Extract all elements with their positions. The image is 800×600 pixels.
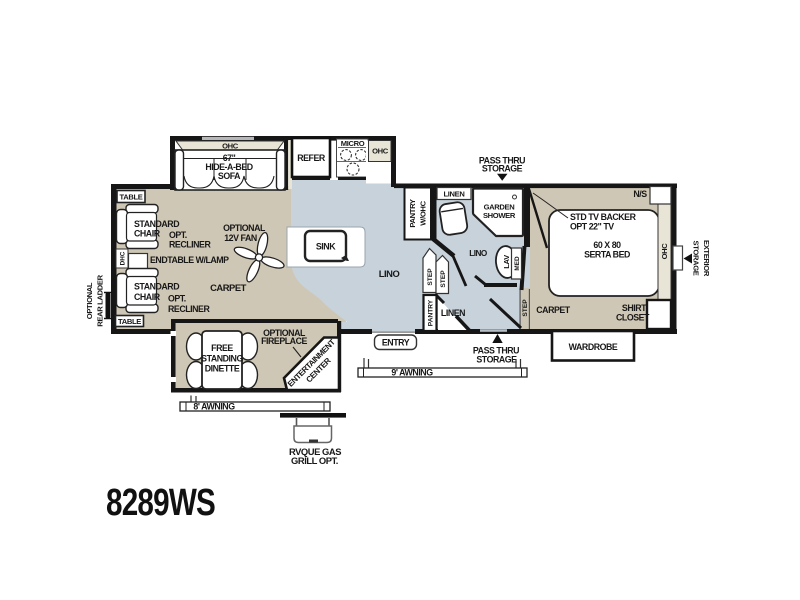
svg-text:STD TV BACKER: STD TV BACKER: [570, 212, 637, 222]
svg-text:LINEN: LINEN: [443, 190, 464, 199]
svg-text:PANTRY: PANTRY: [408, 199, 417, 228]
svg-text:STANDARD: STANDARD: [134, 282, 179, 292]
svg-text:MED: MED: [514, 256, 521, 271]
svg-text:TABLE: TABLE: [120, 193, 143, 202]
svg-text:SERTA BED: SERTA BED: [584, 250, 630, 260]
svg-text:DINETTE: DINETTE: [205, 364, 240, 374]
svg-text:RECLINER: RECLINER: [169, 240, 211, 250]
svg-text:OPT.: OPT.: [168, 294, 186, 304]
svg-text:ENTRY: ENTRY: [382, 338, 410, 348]
svg-text:STORAGE: STORAGE: [692, 241, 701, 276]
svg-text:STEP: STEP: [522, 299, 529, 317]
svg-text:CLOSET: CLOSET: [616, 313, 650, 323]
svg-text:STANDARD: STANDARD: [134, 219, 179, 229]
svg-text:OPT 22" TV: OPT 22" TV: [570, 222, 614, 232]
svg-text:60 X 80: 60 X 80: [593, 240, 621, 250]
svg-text:LAV: LAV: [502, 254, 511, 269]
svg-text:OHC: OHC: [222, 142, 239, 151]
svg-text:OPTIONAL: OPTIONAL: [223, 223, 266, 233]
svg-text:CARPET: CARPET: [210, 282, 247, 293]
svg-text:SHOWER: SHOWER: [483, 211, 516, 220]
svg-text:8' AWNING: 8' AWNING: [193, 402, 235, 412]
svg-text:OPT.: OPT.: [169, 230, 187, 240]
svg-text:PANTRY: PANTRY: [427, 299, 434, 326]
svg-text:FIREPLACE: FIREPLACE: [261, 336, 307, 346]
svg-text:OPTIONAL: OPTIONAL: [85, 282, 94, 319]
svg-text:GRILL OPT.: GRILL OPT.: [291, 455, 338, 466]
svg-text:REFER: REFER: [297, 153, 326, 163]
svg-text:REAR LADDER: REAR LADDER: [96, 274, 105, 326]
svg-text:OHC: OHC: [660, 243, 669, 260]
svg-text:CHAIR: CHAIR: [134, 229, 161, 239]
svg-text:N/S: N/S: [633, 189, 647, 199]
svg-text:SINK: SINK: [316, 242, 336, 252]
svg-text:OHC: OHC: [372, 147, 389, 156]
svg-text:LINO: LINO: [379, 268, 400, 279]
svg-text:RECLINER: RECLINER: [168, 304, 210, 314]
svg-text:CHAIR: CHAIR: [134, 292, 161, 302]
svg-text:12V FAN: 12V FAN: [224, 233, 257, 243]
svg-text:STEP: STEP: [440, 270, 447, 288]
svg-text:STEP: STEP: [427, 268, 434, 286]
svg-text:DHC: DHC: [120, 251, 127, 265]
svg-text:EXTERIOR: EXTERIOR: [702, 240, 711, 277]
svg-text:STORAGE: STORAGE: [476, 355, 517, 365]
svg-text:9' AWNING: 9' AWNING: [391, 368, 433, 378]
svg-text:W/OHC: W/OHC: [419, 200, 428, 225]
svg-text:ENDTABLE W/LAMP: ENDTABLE W/LAMP: [150, 255, 229, 265]
svg-text:STORAGE: STORAGE: [482, 164, 523, 174]
svg-text:STANDING: STANDING: [201, 354, 243, 364]
svg-text:WARDROBE: WARDROBE: [569, 342, 618, 352]
svg-text:SOFA: SOFA: [218, 171, 241, 181]
svg-text:FREE: FREE: [211, 343, 233, 353]
svg-text:CARPET: CARPET: [536, 305, 571, 315]
svg-text:TABLE: TABLE: [118, 317, 141, 326]
svg-text:SHIRT: SHIRT: [622, 303, 647, 313]
svg-text:MICRO: MICRO: [341, 139, 365, 148]
svg-text:LINO: LINO: [469, 249, 488, 258]
svg-text:LINEN: LINEN: [441, 308, 465, 318]
